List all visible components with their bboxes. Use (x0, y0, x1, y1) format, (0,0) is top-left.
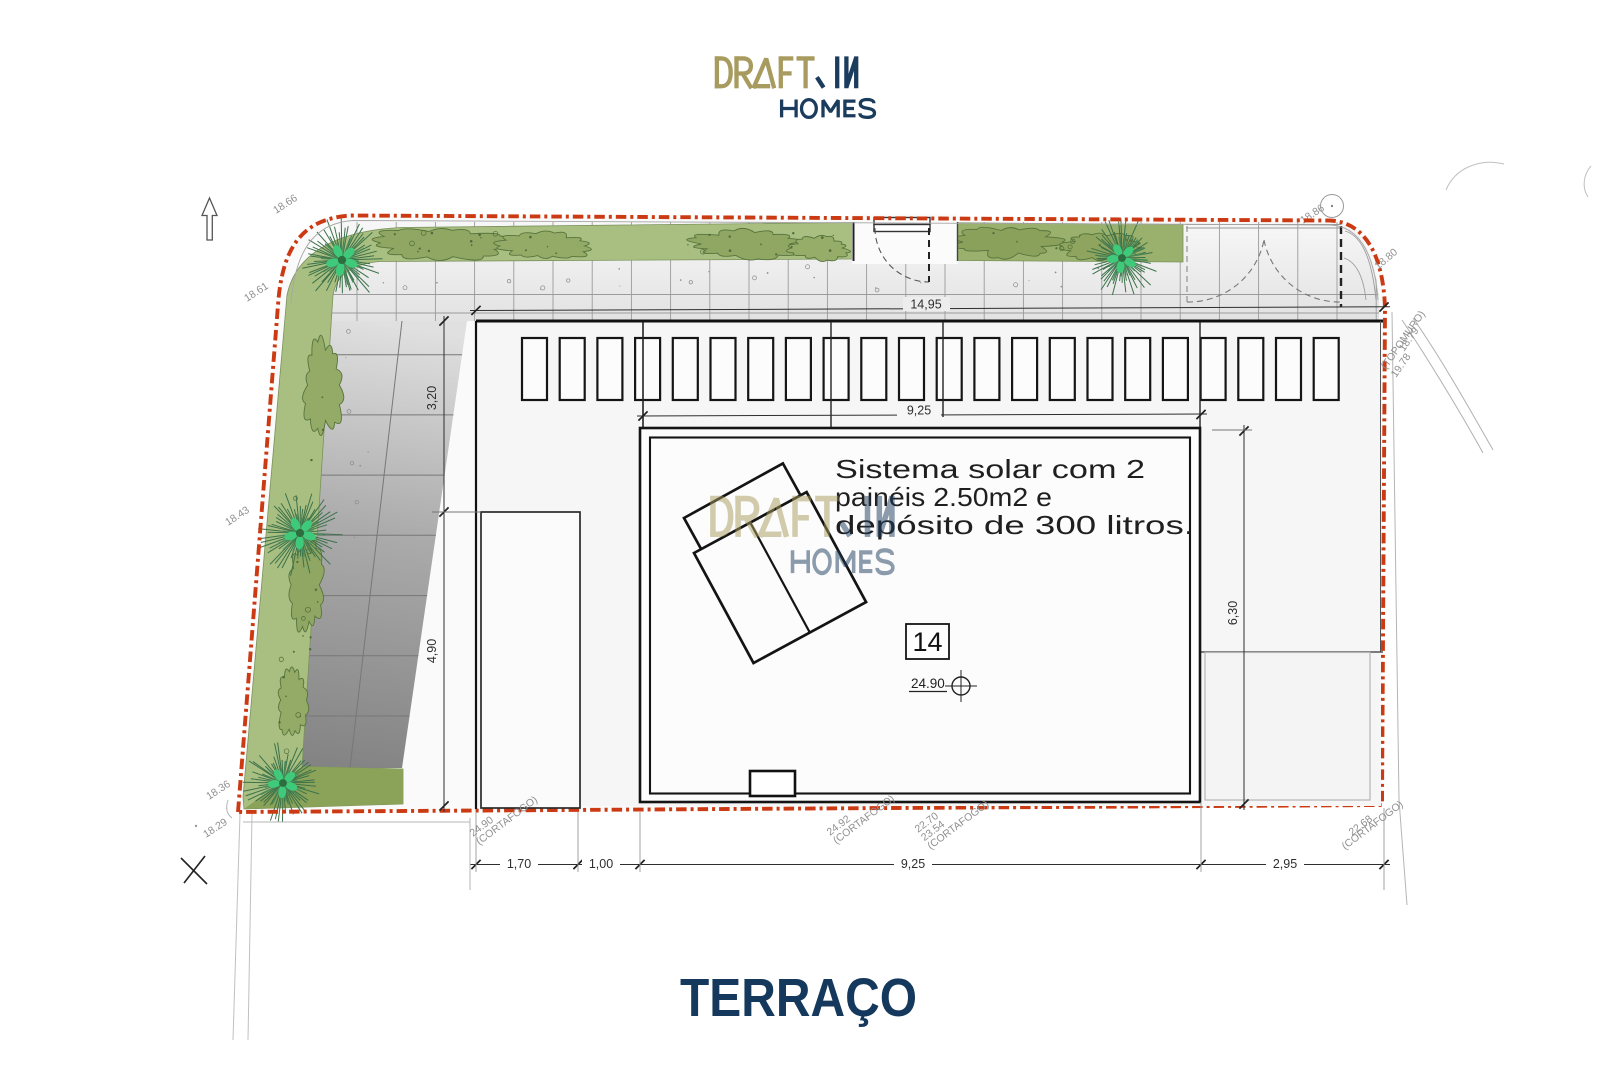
svg-text:1,70: 1,70 (507, 857, 531, 871)
svg-text:6,30: 6,30 (1226, 601, 1240, 625)
svg-text:4,90: 4,90 (425, 639, 439, 663)
svg-text:9,25: 9,25 (907, 404, 931, 418)
svg-text:24.90: 24.90 (911, 676, 945, 691)
svg-text:14,95: 14,95 (910, 298, 941, 312)
svg-text:Sistema solar com 2: Sistema solar com 2 (835, 454, 1145, 484)
svg-text:9,25: 9,25 (901, 857, 925, 871)
svg-text:1,00: 1,00 (589, 857, 613, 871)
svg-text:3,20: 3,20 (425, 386, 439, 410)
svg-text:14: 14 (912, 627, 942, 657)
svg-text:2,95: 2,95 (1273, 857, 1297, 871)
svg-text:TERRAÇO: TERRAÇO (680, 968, 917, 1028)
